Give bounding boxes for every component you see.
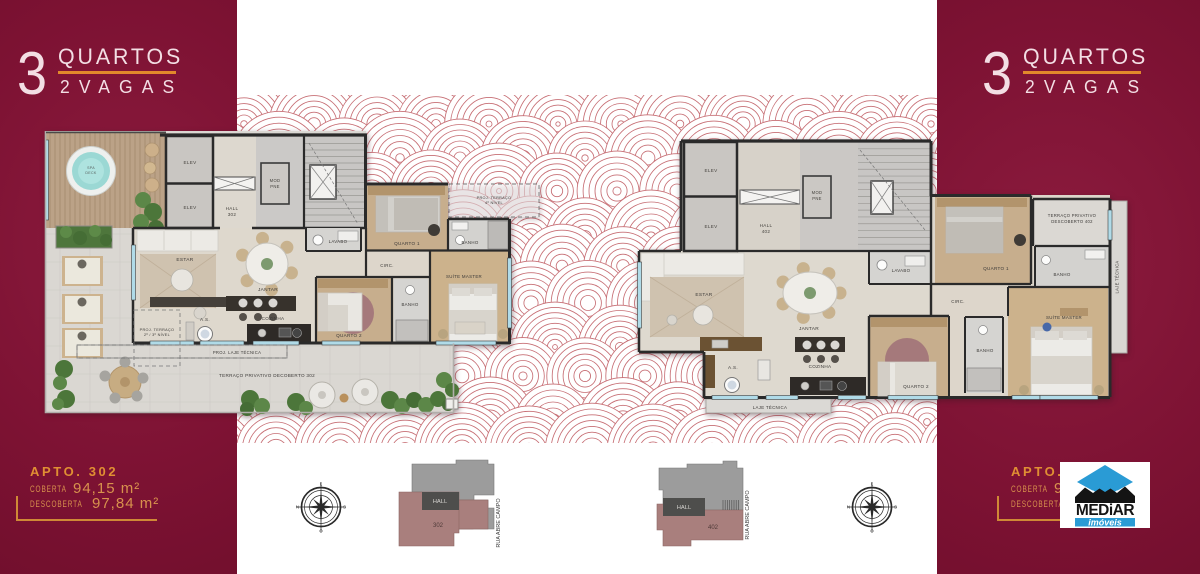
svg-text:DESCOBERTO 402: DESCOBERTO 402	[1051, 219, 1093, 224]
svg-text:QUARTO 1: QUARTO 1	[983, 266, 1009, 271]
svg-text:ELEV: ELEV	[184, 205, 198, 210]
svg-text:DECK: DECK	[85, 171, 96, 175]
svg-text:HALL: HALL	[677, 505, 692, 511]
svg-text:PNE: PNE	[270, 184, 280, 189]
svg-text:CIRC.: CIRC.	[951, 299, 964, 304]
svg-text:COZINHA: COZINHA	[262, 316, 285, 321]
svg-text:QUARTO 1: QUARTO 1	[394, 241, 420, 246]
svg-text:ELEV: ELEV	[705, 224, 719, 229]
svg-text:O: O	[870, 529, 874, 534]
svg-text:QUARTO 2: QUARTO 2	[903, 384, 929, 389]
svg-text:LAJE TÉCNICA: LAJE TÉCNICA	[753, 405, 788, 410]
svg-text:N: N	[847, 505, 850, 510]
svg-text:QUARTO 2: QUARTO 2	[336, 333, 362, 338]
svg-text:302: 302	[228, 212, 237, 217]
svg-text:L: L	[871, 482, 874, 487]
svg-text:PROJ. TERRAÇO: PROJ. TERRAÇO	[477, 196, 512, 200]
svg-text:HALL: HALL	[226, 206, 239, 211]
svg-text:PROJ. LAJE TÉCNICA: PROJ. LAJE TÉCNICA	[213, 350, 261, 355]
svg-text:4º NÍVEL: 4º NÍVEL	[485, 201, 503, 205]
svg-text:MOD: MOD	[812, 190, 823, 195]
svg-text:HALL: HALL	[433, 499, 448, 505]
svg-text:ELEV: ELEV	[705, 168, 719, 173]
svg-text:A.S.: A.S.	[728, 365, 738, 370]
svg-text:JANTAR: JANTAR	[799, 326, 819, 332]
svg-text:COZINHA: COZINHA	[809, 364, 832, 369]
svg-text:2º / 3º NÍVEL: 2º / 3º NÍVEL	[144, 333, 170, 337]
svg-text:JANTAR: JANTAR	[258, 287, 278, 293]
svg-text:BANHO: BANHO	[976, 348, 993, 353]
svg-text:ELEV: ELEV	[184, 160, 198, 165]
svg-text:PNE: PNE	[812, 196, 822, 201]
svg-text:PROJ. TERRAÇO: PROJ. TERRAÇO	[140, 328, 175, 332]
svg-text:TERRAÇO PRIVATIVO: TERRAÇO PRIVATIVO	[1048, 213, 1097, 218]
svg-text:TERRAÇO PRIVATIVO DECOBERTO 30: TERRAÇO PRIVATIVO DECOBERTO 302	[219, 373, 315, 378]
svg-text:RUA ABRE CAMPO: RUA ABRE CAMPO	[745, 490, 751, 540]
svg-text:ESTAR: ESTAR	[695, 292, 712, 298]
svg-text:302: 302	[433, 523, 444, 529]
svg-text:L: L	[320, 482, 323, 487]
svg-text:BANHO: BANHO	[1053, 272, 1070, 277]
svg-text:BANHO: BANHO	[461, 240, 478, 245]
svg-text:S: S	[894, 505, 897, 510]
svg-text:SPA: SPA	[87, 166, 95, 170]
svg-text:O: O	[319, 529, 323, 534]
svg-text:A.S.: A.S.	[200, 317, 210, 322]
svg-text:BANHO: BANHO	[401, 302, 418, 307]
svg-text:ESTAR: ESTAR	[176, 257, 193, 263]
svg-text:RUA ABRE CAMPO: RUA ABRE CAMPO	[496, 498, 502, 548]
svg-text:LAVABO: LAVABO	[329, 239, 348, 244]
svg-text:402: 402	[708, 525, 719, 531]
svg-text:imóveis: imóveis	[1088, 518, 1122, 528]
svg-text:MEDiAR: MEDiAR	[1076, 502, 1134, 519]
svg-text:S: S	[343, 505, 346, 510]
svg-text:MOD: MOD	[270, 178, 281, 183]
svg-text:HALL: HALL	[760, 223, 773, 228]
svg-text:LAJE TÉCNICA: LAJE TÉCNICA	[1115, 260, 1120, 293]
svg-text:CIRC.: CIRC.	[380, 263, 393, 268]
svg-text:N: N	[296, 505, 299, 510]
svg-text:SUÍTE MASTER: SUÍTE MASTER	[446, 274, 482, 279]
svg-text:LAVABO: LAVABO	[892, 268, 911, 273]
svg-text:402: 402	[762, 229, 771, 234]
